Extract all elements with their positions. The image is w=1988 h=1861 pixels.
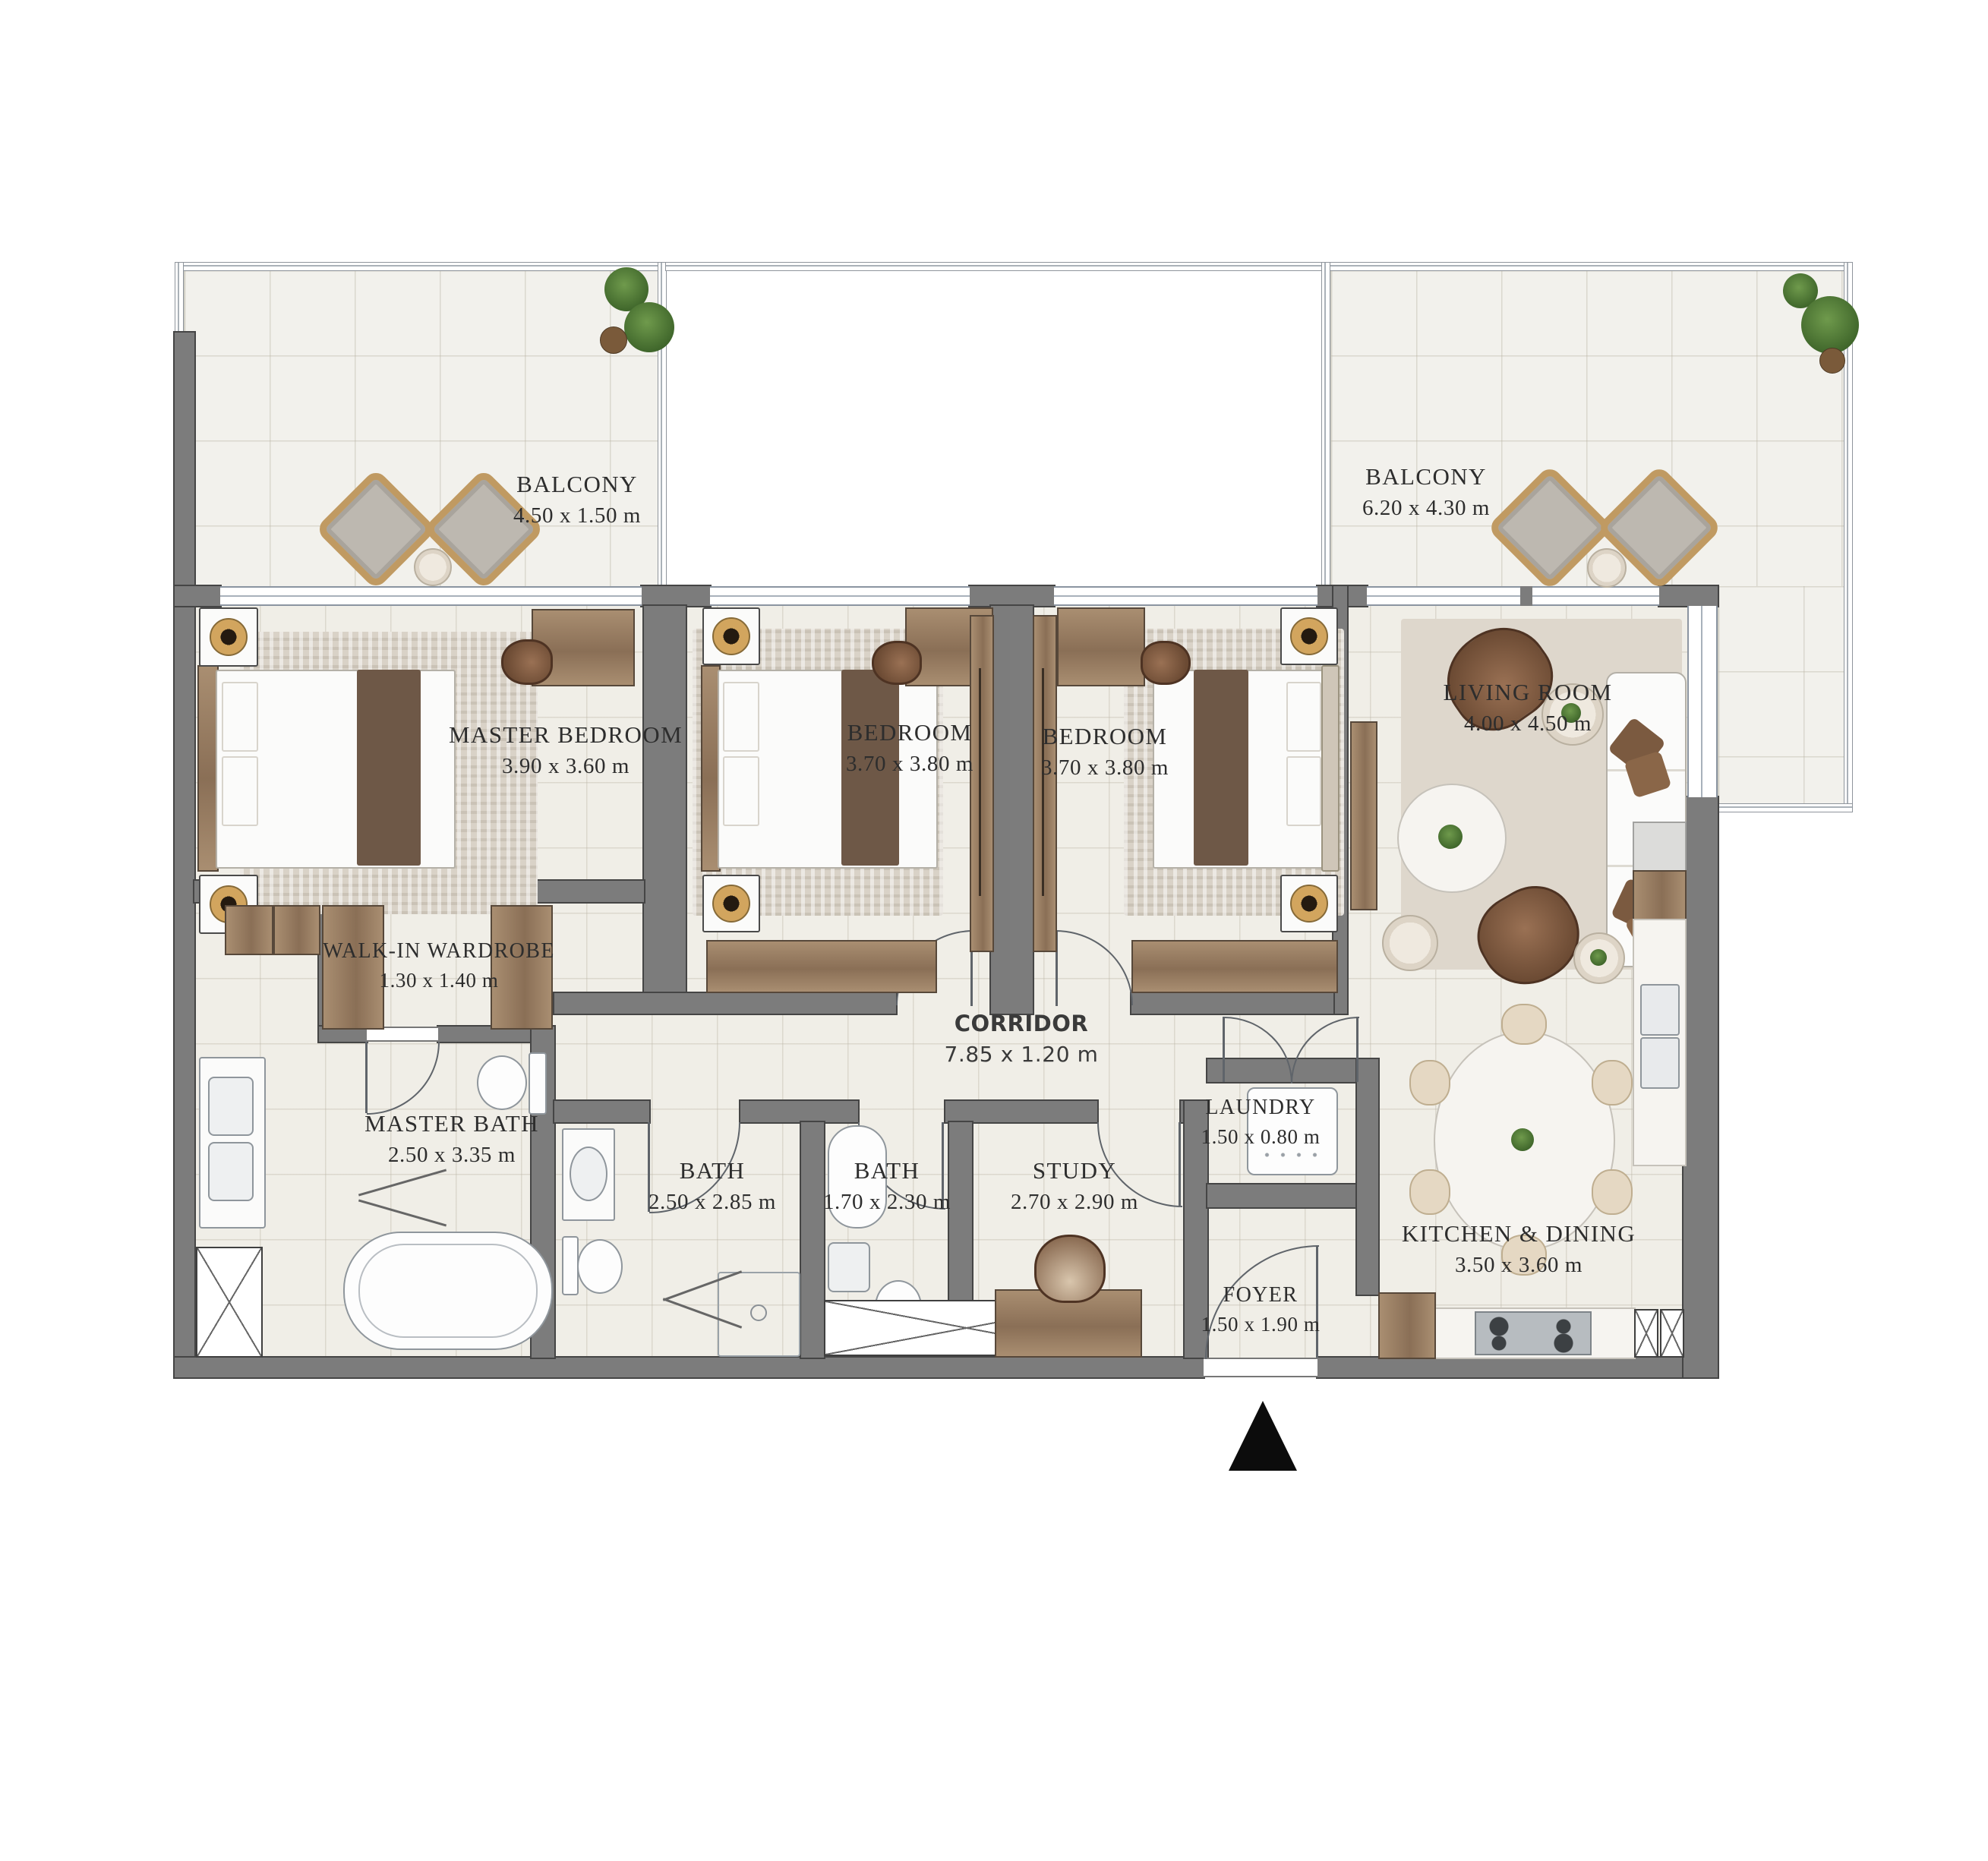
kitchen-cabinet-left [1378,1292,1436,1359]
laundry-washer-controls [1259,1151,1323,1159]
room-dims: 7.85 x 1.20 m [944,1042,1098,1067]
dining-chair-left-top [1409,1060,1450,1106]
wall-top-seg3 [970,586,1054,606]
bedroom2-desk [1057,607,1145,686]
balcony-right-railing-bottom [1718,803,1853,812]
room-name: LAUNDRY [1201,1096,1320,1120]
wall-top-seg1 [175,586,220,606]
bath1-shower-drain [750,1304,767,1321]
mbath-toilet-bowl [477,1055,527,1110]
master-bed-runner [357,670,421,866]
dining-chair-right-bottom [1592,1169,1633,1215]
room-dims: 3.90 x 3.60 m [449,754,683,779]
window-master-bedroom [220,586,642,606]
hall-closet-2 [273,905,320,955]
room-label-balcony-left: BALCONY 4.50 x 1.50 m [513,471,641,528]
room-label-laundry: LAUNDRY 1.50 x 0.80 m [1201,1096,1320,1149]
room-label-corridor: CORRIDOR 7.85 x 1.20 m [944,1011,1098,1067]
bedroom1-dresser [706,940,937,993]
room-dims: 1.30 x 1.40 m [323,969,555,992]
room-dims: 2.50 x 2.85 m [648,1190,776,1215]
hall-closet-1 [225,905,273,955]
wall-master-bed1 [644,606,686,1014]
window-bedroom-2 [1054,586,1317,606]
room-label-study: STUDY 2.70 x 2.90 m [1011,1157,1138,1215]
room-name: BALCONY [513,471,641,498]
balcony-left-plant-2 [624,302,674,352]
wall-corridor-bottom-1 [554,1101,649,1122]
kitchen-cabinet-upper [1633,870,1687,920]
floor-plan: BALCONY 4.50 x 1.50 m BALCONY 6.20 x 4.3… [0,0,1988,1861]
entrance-arrow [1229,1401,1297,1471]
kitchen-sink-1 [1640,984,1680,1036]
mbath-sink-1 [208,1077,254,1136]
room-label-bath-2: BATH 1.70 x 2.30 m [823,1157,951,1215]
kitchen-sink-2 [1640,1037,1680,1089]
room-label-living-room: LIVING ROOM 4.00 x 4.50 m [1444,679,1613,737]
wall-corridor-bottom-3 [945,1101,1097,1122]
room-name: BALCONY [1362,463,1490,490]
balcony-right-floor-side [1718,586,1845,804]
room-dims: 2.50 x 3.35 m [364,1143,539,1168]
balcony-right-pot [1819,348,1845,374]
bedroom1-lamp-bottom [712,885,750,923]
window-living-room-side [1687,606,1718,797]
room-dims: 4.00 x 4.50 m [1444,711,1613,737]
master-bed-pillow-1 [222,682,258,752]
building-edge-line [665,262,1332,271]
room-name: CORRIDOR [944,1011,1098,1036]
bedroom2-desk-chair [1141,641,1191,685]
room-name: BEDROOM [1041,723,1169,750]
door-leaf-study [1179,1122,1181,1206]
kitchen-stove [1475,1311,1592,1355]
dining-table-plant [1511,1128,1534,1151]
wall-bedrooms-column [991,606,1033,1014]
study-chair [1034,1235,1106,1303]
bedroom1-pillow-1 [723,682,759,752]
room-label-foyer: FOYER 1.50 x 1.90 m [1201,1283,1320,1336]
bedroom1-lamp-top [712,617,750,655]
room-dims: 3.70 x 3.80 m [1041,755,1169,781]
room-label-master-bedroom: MASTER BEDROOM 3.90 x 3.60 m [449,721,683,779]
mbath-bathtub-inner [358,1244,538,1338]
bedroom1-pillow-2 [723,756,759,826]
room-label-balcony-right: BALCONY 6.20 x 4.30 m [1362,463,1490,521]
bedroom2-pillow-1 [1286,682,1321,752]
room-name: WALK-IN WARDROBE [323,939,555,964]
balcony-left-table [414,548,452,586]
bedroom2-wardrobe [1033,615,1057,952]
room-label-bath-1: BATH 2.50 x 2.85 m [648,1157,776,1215]
bedroom2-lamp-bottom [1290,885,1328,923]
balcony-left-pot [600,326,627,354]
kitchen-closet-2 [1660,1309,1684,1358]
wall-bath1-bath2 [801,1122,824,1358]
wall-top-seg5 [1659,586,1718,606]
living-tv-console [1350,721,1377,910]
bedroom1-wardrobe-handle [979,668,981,896]
wall-laundry-bottom [1207,1184,1378,1207]
master-desk-chair [501,639,553,685]
dining-chair-left-bottom [1409,1169,1450,1215]
room-dims: 6.20 x 4.30 m [1362,496,1490,521]
room-dims: 3.50 x 3.60 m [1402,1253,1636,1278]
room-name: STUDY [1011,1157,1138,1184]
bedroom1-wardrobe [970,615,994,952]
room-dims: 2.70 x 2.90 m [1011,1190,1138,1215]
dining-chair-top [1501,1004,1547,1045]
entrance-opening [1204,1358,1317,1377]
room-dims: 4.50 x 1.50 m [513,503,641,528]
room-dims: 3.70 x 3.80 m [846,752,973,777]
wall-balcony-stub-left [175,333,194,586]
wall-corridor-top-e [1131,993,1333,1014]
room-name: BEDROOM [846,719,973,746]
room-name: MASTER BEDROOM [449,721,683,749]
mbath-toilet-tank [529,1052,547,1115]
balcony-right-railing-left [1321,262,1330,588]
wall-top-seg2 [642,586,710,606]
bedroom2-wardrobe-handle [1042,668,1044,896]
room-dims: 1.50 x 0.80 m [1201,1125,1320,1149]
room-name: BATH [648,1157,776,1184]
room-label-kitchen-dining: KITCHEN & DINING 3.50 x 3.60 m [1402,1220,1636,1278]
mbath-closet [196,1247,263,1358]
kitchen-fridge [1633,822,1687,872]
master-lamp-top [210,618,248,656]
door-leaf-master-bath [365,1042,368,1113]
balcony-left-railing-left [175,262,184,336]
bedroom2-bed-headboard [1321,665,1340,872]
living-coffee-table-plant [1438,825,1463,849]
master-bed-pillow-2 [222,756,258,826]
bath1-toilet-tank [562,1236,579,1295]
bedroom2-bed-runner [1194,670,1248,866]
room-name: FOYER [1201,1283,1320,1307]
living-table-plant [1590,949,1607,966]
balcony-left-railing-top [175,262,667,271]
bath1-sink [570,1147,607,1201]
room-name: BATH [823,1157,951,1184]
wall-bottom-west [175,1358,1204,1377]
mbath-sink-2 [208,1142,254,1201]
room-label-bedroom-1: BEDROOM 3.70 x 3.80 m [846,719,973,777]
room-label-walk-in-wardrobe: WALK-IN WARDROBE 1.30 x 1.40 m [323,939,555,992]
kitchen-closet-1 [1634,1309,1658,1358]
bath2-sink [828,1242,870,1292]
wall-corridor-top-w [554,993,896,1014]
wall-bottom-east [1317,1358,1718,1377]
window-bedroom-1 [710,586,970,606]
window-living-room [1367,586,1659,606]
room-name: KITCHEN & DINING [1402,1220,1636,1248]
living-round-table-left [1382,915,1438,971]
door-leaf-laundry-left [1223,1017,1225,1082]
room-name: MASTER BATH [364,1110,539,1137]
bedroom1-desk-chair [872,641,922,685]
room-dims: 1.70 x 2.30 m [823,1190,951,1215]
balcony-right-plant-2 [1801,296,1859,354]
wall-left [175,586,194,1377]
balcony-right-table [1587,548,1627,588]
bedroom2-lamp-top [1290,617,1328,655]
room-name: LIVING ROOM [1444,679,1613,706]
bedroom2-pillow-2 [1286,756,1321,826]
bedroom2-dresser [1131,940,1338,993]
wall-corridor-bottom-2 [740,1101,858,1122]
room-label-bedroom-2: BEDROOM 3.70 x 3.80 m [1041,723,1169,781]
wall-laundry-kitchen [1357,1059,1378,1295]
wall-bath2-study [949,1122,972,1300]
balcony-right-railing-top [1321,262,1853,271]
wall-right [1683,797,1718,1377]
door-leaf-laundry-right [1356,1017,1358,1082]
bath1-toilet-bowl [577,1239,623,1294]
room-label-master-bath: MASTER BATH 2.50 x 3.35 m [364,1110,539,1168]
room-dims: 1.50 x 1.90 m [1201,1313,1320,1336]
dining-chair-right-top [1592,1060,1633,1106]
window-living-mullion [1520,586,1532,606]
